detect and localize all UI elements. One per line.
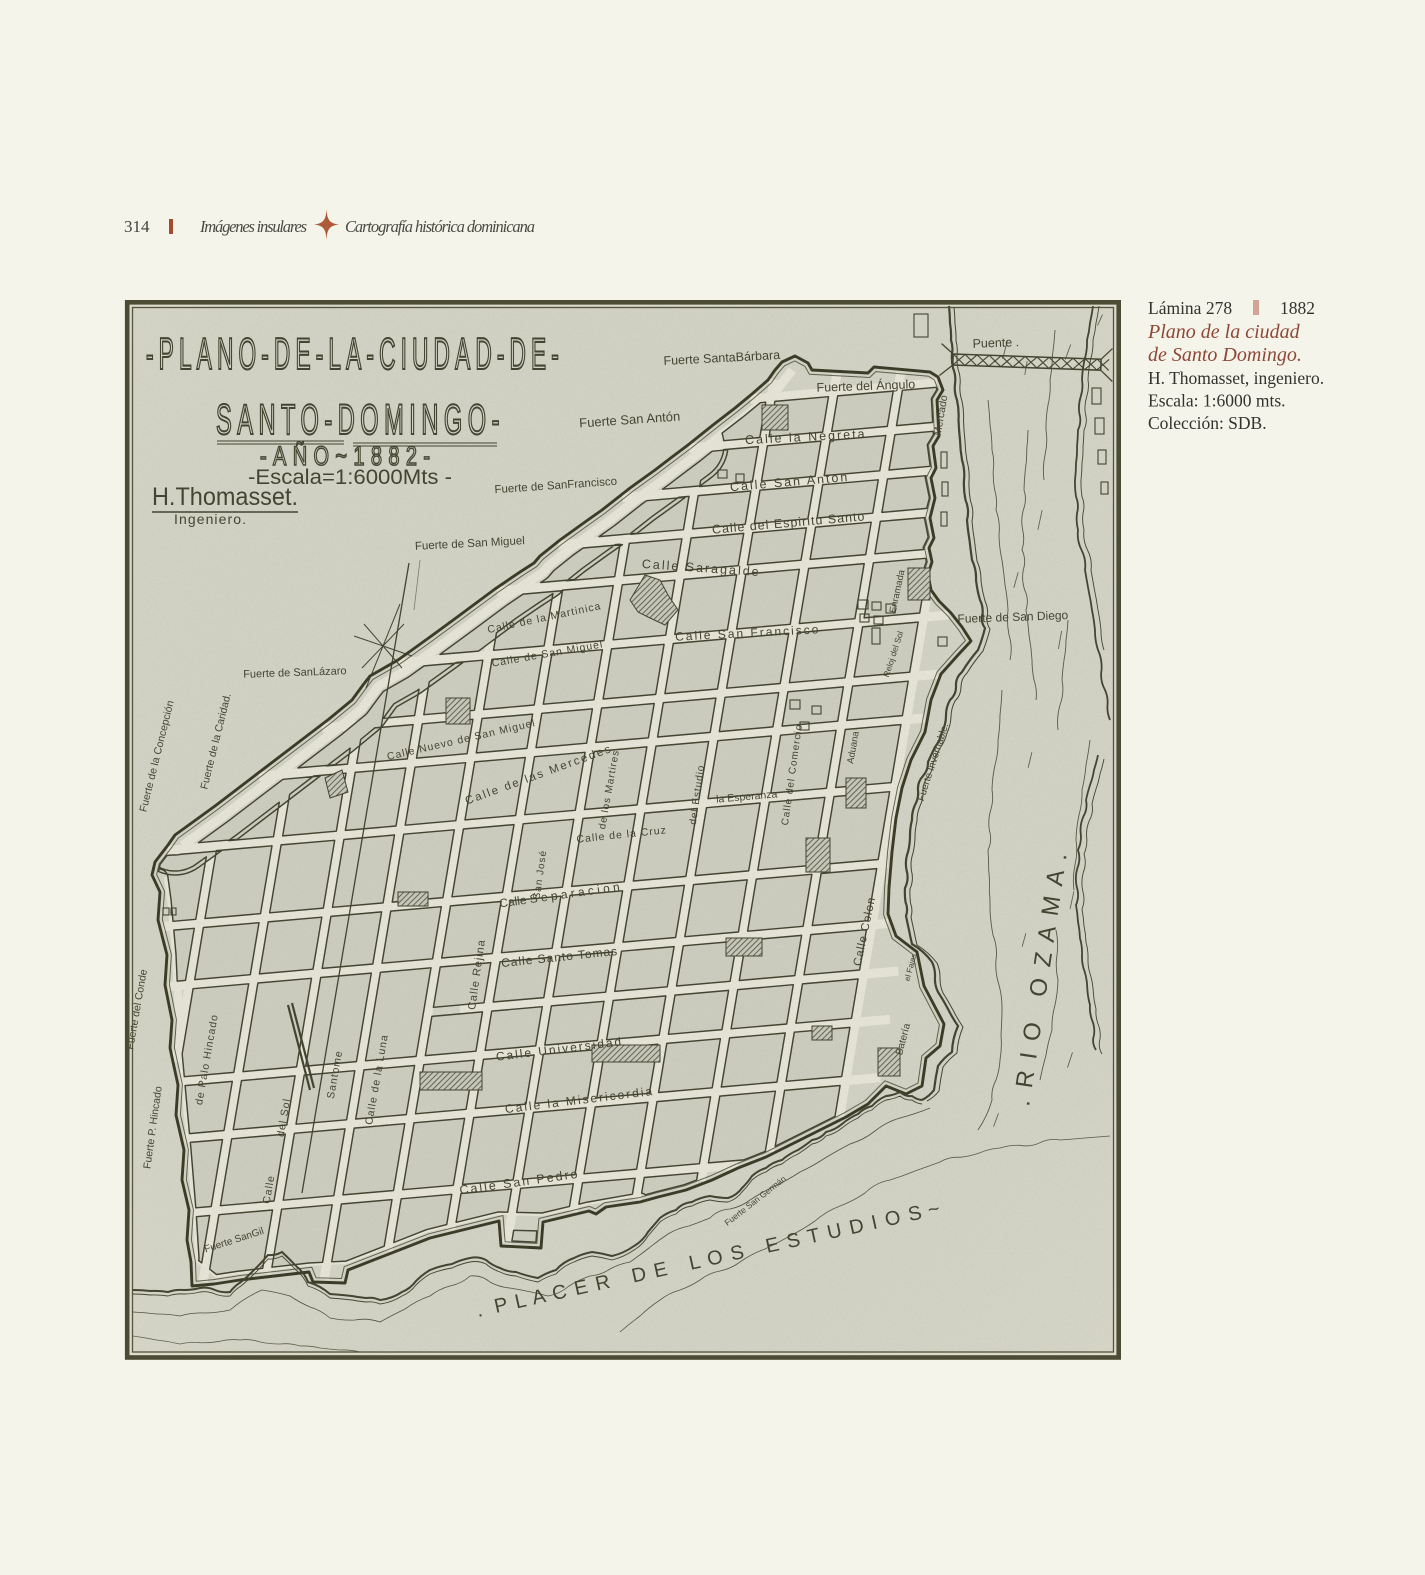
svg-text:Plano de la ciudad: Plano de la ciudad	[1147, 321, 1301, 343]
svg-text:de Santo Domingo.: de Santo Domingo.	[1148, 344, 1302, 366]
svg-text:1882: 1882	[1280, 298, 1315, 318]
svg-text:Colección: SDB.: Colección: SDB.	[1148, 413, 1267, 433]
svg-text:Imágenes insulares: Imágenes insulares	[199, 217, 307, 236]
svg-text:Lámina 278: Lámina 278	[1148, 298, 1232, 318]
svg-text:H. Thomasset, ingeniero.: H. Thomasset, ingeniero.	[1148, 368, 1324, 388]
svg-text:Escala: 1:6000 mts.: Escala: 1:6000 mts.	[1148, 391, 1286, 411]
svg-text:314: 314	[124, 217, 150, 236]
svg-text:Cartografía histórica dominica: Cartografía histórica dominicana	[345, 217, 535, 236]
